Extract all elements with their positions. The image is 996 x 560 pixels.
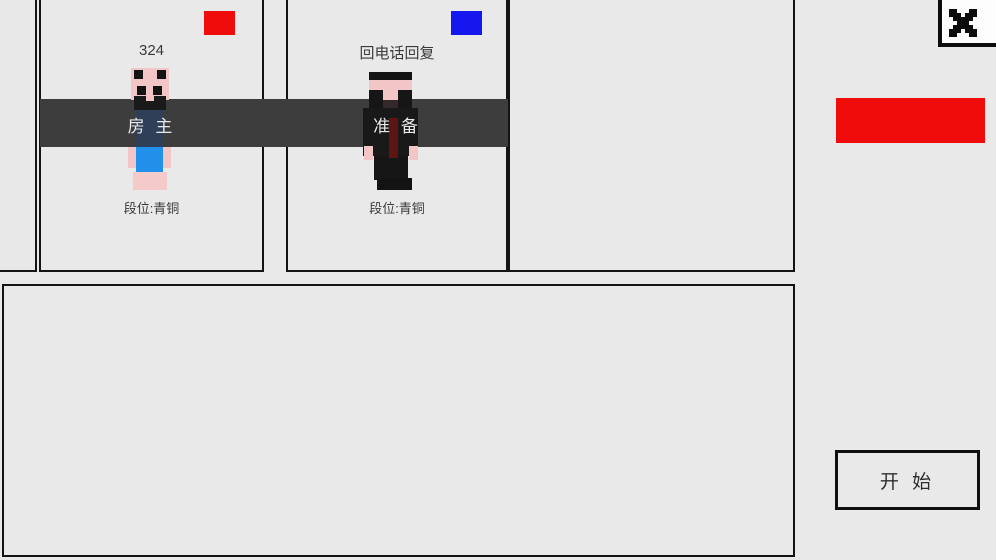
player-slot-partial: [0, 0, 37, 272]
team-color-swatch-blue[interactable]: [451, 11, 482, 35]
status-label-ready: 准 备: [286, 112, 508, 136]
player-name: 回电话回复: [288, 42, 506, 63]
player-rank: 段位:青铜: [288, 198, 506, 217]
player-name: 324: [41, 42, 262, 59]
start-button[interactable]: 开 始: [835, 450, 980, 510]
pixel-x-icon: [949, 9, 977, 37]
chat-log-box[interactable]: [2, 284, 795, 557]
close-button[interactable]: [938, 0, 996, 47]
status-label-owner: 房 主: [39, 112, 264, 136]
team-color-swatch-red[interactable]: [204, 11, 235, 35]
start-button-label: 开 始: [880, 467, 935, 494]
game-lobby-screen: 324 段位:青铜 回电话回复 段位:青铜 房 主 准 备: [0, 0, 996, 560]
player-rank: 段位:青铜: [41, 198, 262, 217]
red-banner: [836, 98, 985, 143]
player-slot-empty[interactable]: [508, 0, 795, 272]
